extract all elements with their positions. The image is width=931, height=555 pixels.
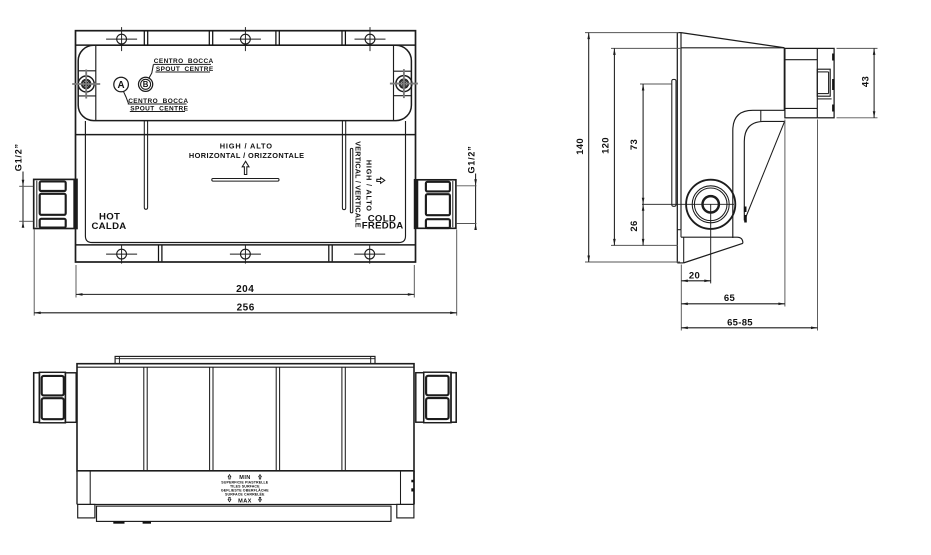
svg-text:65-85: 65-85 [727, 317, 753, 328]
svg-text:B: B [143, 80, 149, 89]
svg-text:73: 73 [629, 139, 640, 150]
svg-text:VERTICAL / VERTICALE: VERTICAL / VERTICALE [354, 141, 363, 228]
svg-text:G1/2”: G1/2” [13, 143, 23, 171]
svg-text:256: 256 [237, 302, 255, 313]
svg-text:HIGH / ALTO: HIGH / ALTO [365, 160, 374, 212]
svg-text:SURFACE CARRELÉE: SURFACE CARRELÉE [225, 492, 265, 497]
svg-text:43: 43 [861, 76, 872, 87]
svg-text:140: 140 [575, 138, 586, 155]
svg-text:26: 26 [629, 220, 640, 231]
svg-text:G1/2”: G1/2” [467, 145, 477, 173]
svg-text:HORIZONTAL / ORIZZONTALE: HORIZONTAL / ORIZZONTALE [189, 151, 305, 160]
svg-text:20: 20 [689, 270, 700, 281]
svg-text:120: 120 [601, 137, 612, 154]
svg-text:204: 204 [236, 284, 254, 295]
svg-text:MAX: MAX [238, 498, 252, 504]
svg-text:CALDA: CALDA [91, 221, 126, 232]
svg-text:65: 65 [724, 293, 736, 304]
svg-text:A: A [118, 80, 125, 91]
svg-text:HIGH / ALTO: HIGH / ALTO [220, 142, 273, 151]
svg-text:FREDDA: FREDDA [362, 220, 404, 231]
